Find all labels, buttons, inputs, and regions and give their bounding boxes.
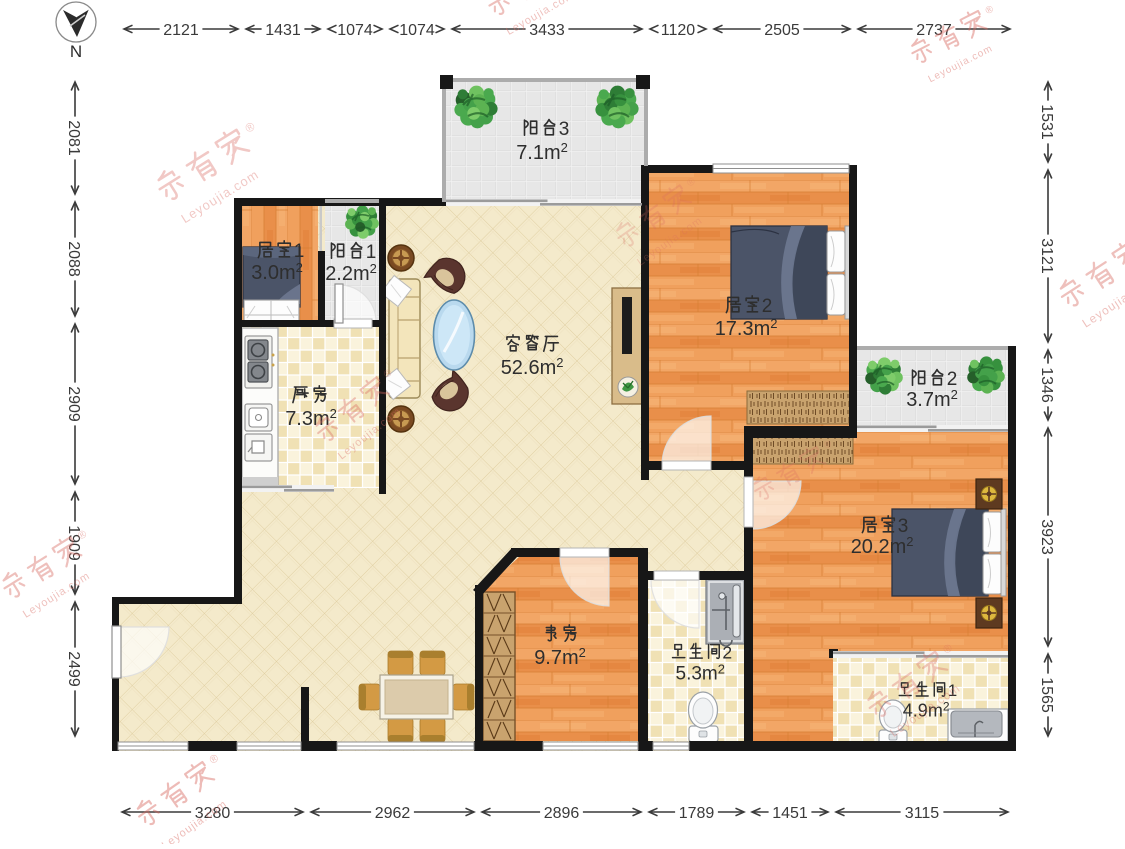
svg-text:7.1m2: 7.1m2 — [516, 140, 568, 164]
svg-text:3.7m2: 3.7m2 — [906, 387, 958, 411]
svg-text:1074: 1074 — [399, 22, 435, 39]
svg-text:1531: 1531 — [1038, 104, 1055, 140]
svg-text:2909: 2909 — [65, 386, 82, 422]
svg-text:1: 1 — [366, 242, 377, 263]
svg-text:20.2m2: 20.2m2 — [851, 534, 914, 558]
svg-text:1120: 1120 — [661, 22, 696, 39]
svg-text:3.0m2: 3.0m2 — [251, 260, 303, 284]
svg-text:2499: 2499 — [65, 651, 82, 687]
svg-text:17.3m2: 17.3m2 — [715, 316, 778, 340]
svg-text:1789: 1789 — [679, 805, 715, 822]
svg-text:2962: 2962 — [375, 805, 411, 822]
svg-text:2896: 2896 — [544, 805, 580, 822]
svg-text:3433: 3433 — [529, 22, 565, 39]
svg-text:5.3m2: 5.3m2 — [676, 662, 725, 685]
svg-text:52.6m2: 52.6m2 — [501, 355, 564, 379]
svg-text:2088: 2088 — [65, 241, 82, 277]
svg-text:9.7m2: 9.7m2 — [534, 645, 586, 669]
svg-text:2: 2 — [762, 296, 773, 317]
svg-text:1074: 1074 — [337, 22, 373, 39]
svg-text:2081: 2081 — [65, 120, 82, 156]
svg-text:1431: 1431 — [265, 22, 301, 39]
svg-text:3923: 3923 — [1038, 519, 1055, 555]
svg-text:2: 2 — [722, 642, 732, 662]
svg-text:2505: 2505 — [764, 22, 800, 39]
svg-text:1346: 1346 — [1038, 367, 1055, 403]
svg-text:2121: 2121 — [163, 22, 199, 39]
svg-text:7.3m2: 7.3m2 — [285, 406, 337, 430]
svg-text:3: 3 — [559, 119, 570, 140]
svg-text:3121: 3121 — [1038, 238, 1055, 274]
svg-text:1565: 1565 — [1038, 677, 1055, 713]
svg-text:N: N — [70, 42, 82, 61]
svg-text:3115: 3115 — [905, 805, 940, 822]
svg-text:2.2m2: 2.2m2 — [325, 261, 377, 285]
svg-text:1451: 1451 — [772, 805, 808, 822]
svg-text:1: 1 — [294, 241, 305, 262]
